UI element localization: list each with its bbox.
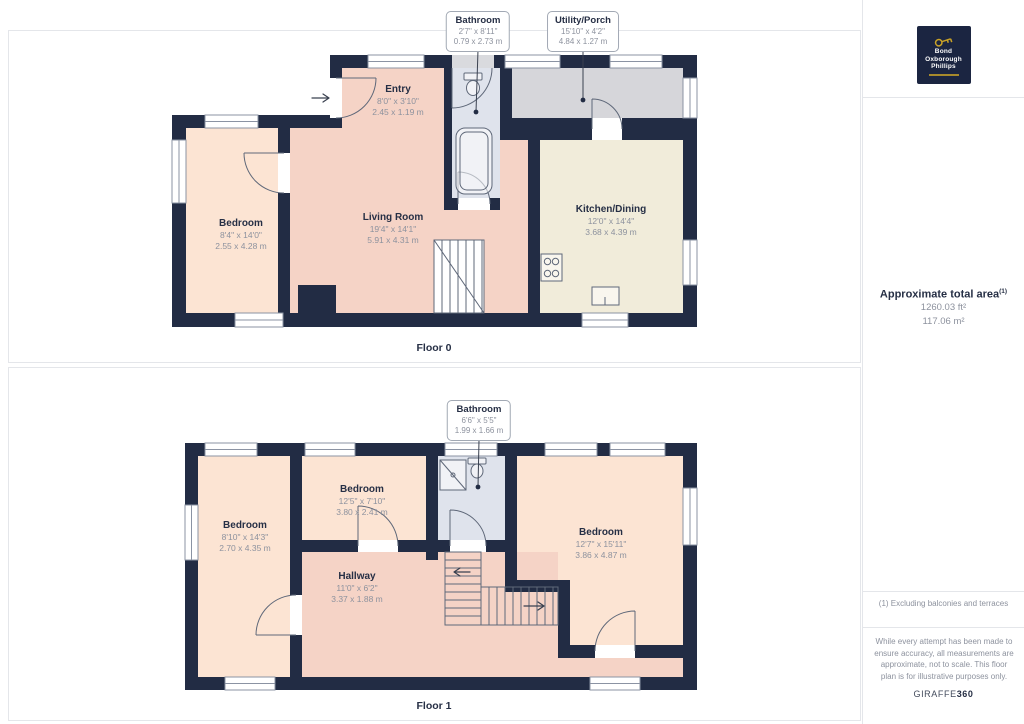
logo-text-line: Phillips — [931, 63, 956, 71]
floor1-label: Floor 1 — [416, 700, 451, 712]
room-label-bedroom-right-f1: Bedroom 12'7" x 15'11" 3.86 x 4.87 m — [575, 526, 627, 561]
room-label-living-room: Living Room 19'4" x 14'1" 5.91 x 4.31 m — [363, 211, 424, 246]
room-label-bedroom-mid-f1: Bedroom 12'5" x 7'10" 3.80 x 2.41 m — [336, 483, 388, 518]
room-label-bedroom-f0: Bedroom 8'4" x 14'0" 2.55 x 4.28 m — [215, 217, 267, 252]
room-label-hallway: Hallway 11'0" x 6'2" 3.37 x 1.88 m — [331, 570, 383, 605]
sink-fixture — [592, 287, 619, 305]
logo-text-line: Bond — [935, 48, 952, 56]
callout-dim-ft: 6'6" x 5'5" — [455, 416, 503, 426]
footnote-marker: (1) — [999, 288, 1007, 295]
callout-utility-porch: Utility/Porch 15'10" x 4'2" 4.84 x 1.27 … — [547, 11, 619, 52]
logo-gold-rule — [929, 74, 959, 76]
callout-dim-m: 4.84 x 1.27 m — [555, 37, 611, 47]
callout-bathroom-floor0: Bathroom 2'7" x 8'11" 0.79 x 2.73 m — [446, 11, 510, 52]
total-area-title: Approximate total area(1) — [863, 288, 1024, 301]
room-label-bedroom-left-f1: Bedroom 8'10" x 14'3" 2.70 x 4.35 m — [219, 519, 271, 554]
disclaimer-text: While every attempt has been made to ens… — [874, 636, 1014, 682]
bathtub-fixture — [456, 128, 492, 194]
staircase-floor0 — [434, 240, 484, 313]
total-area-m: 117.06 m² — [863, 315, 1024, 329]
sidebar-divider — [863, 591, 1024, 592]
callout-bathroom-floor1: Bathroom 6'6" x 5'5" 1.99 x 1.66 m — [447, 400, 511, 441]
giraffe360-brand: GIRAFFE360 — [863, 689, 1024, 699]
callout-dim-ft: 2'7" x 8'11" — [454, 27, 502, 37]
room-label-entry: Entry 8'0" x 3'10" 2.45 x 1.19 m — [372, 83, 424, 118]
callout-title: Bathroom — [455, 404, 503, 416]
total-area-ft: 1260.03 ft² — [863, 301, 1024, 315]
floor0-geometry — [172, 50, 697, 327]
room-label-kitchen-dining: Kitchen/Dining 12'0" x 14'4" 3.68 x 4.39… — [576, 203, 647, 238]
info-sidebar: Bond Oxborough Phillips Approximate tota… — [862, 0, 1024, 724]
shower-fixture — [440, 460, 466, 490]
callout-dim-m: 1.99 x 1.66 m — [455, 426, 503, 436]
floor0-label: Floor 0 — [416, 342, 451, 354]
key-icon — [933, 34, 955, 48]
sidebar-divider — [863, 627, 1024, 628]
callout-title: Bathroom — [454, 15, 502, 27]
floorplan-page: Bathroom 2'7" x 8'11" 0.79 x 2.73 m Util… — [0, 0, 1024, 724]
entry-arrow-icon — [312, 94, 329, 102]
callout-title: Utility/Porch — [555, 15, 611, 27]
area-footnote: (1) Excluding balconies and terraces — [863, 599, 1024, 608]
logo-text-line: Oxborough — [925, 56, 962, 64]
callout-dim-m: 0.79 x 2.73 m — [454, 37, 502, 47]
floor1-geometry — [185, 440, 697, 690]
agency-logo: Bond Oxborough Phillips — [917, 26, 971, 84]
hob-fixture — [541, 254, 562, 281]
total-area-block: Approximate total area(1) 1260.03 ft² 11… — [863, 288, 1024, 329]
sidebar-divider — [863, 97, 1024, 98]
callout-dim-ft: 15'10" x 4'2" — [555, 27, 611, 37]
